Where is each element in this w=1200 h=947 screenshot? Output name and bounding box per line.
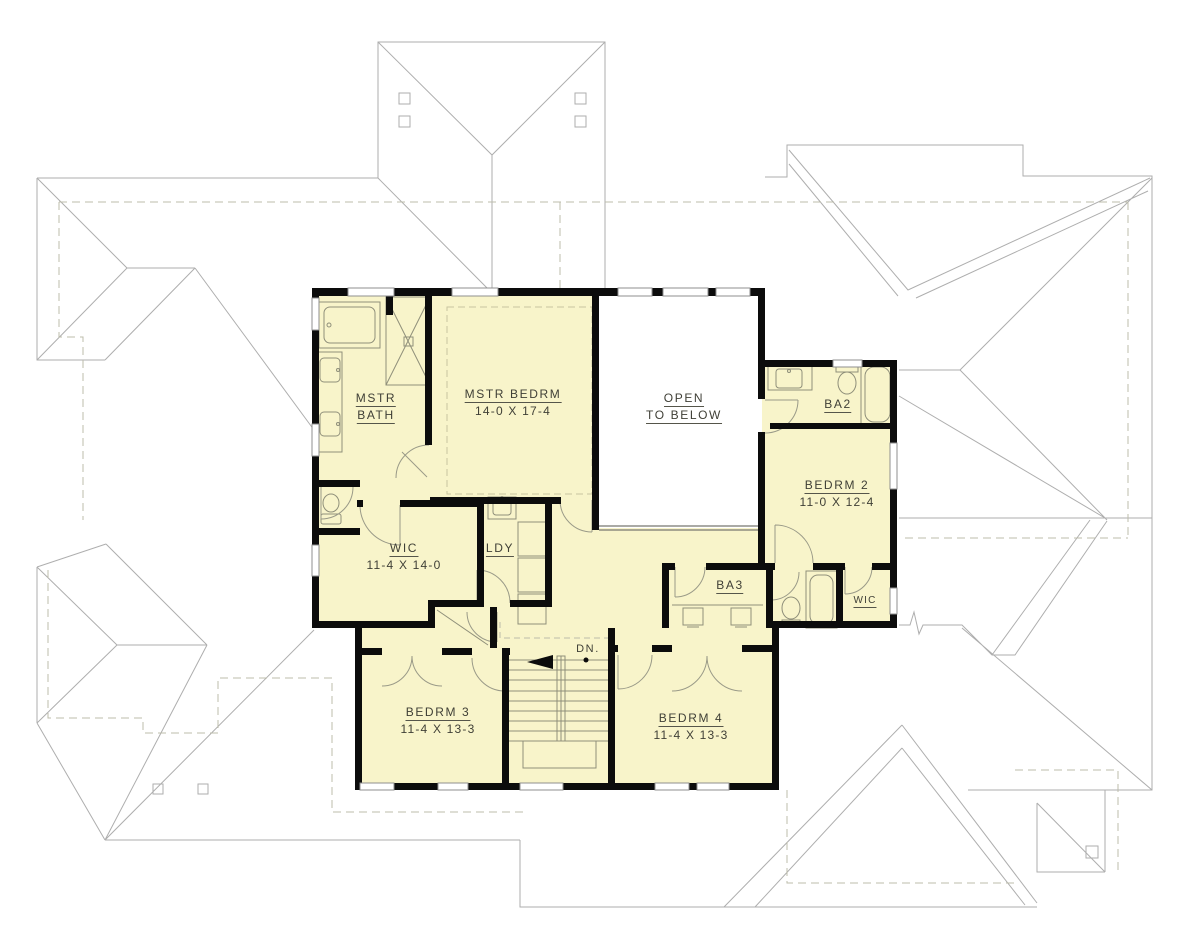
room-name: BA2: [824, 397, 851, 413]
room-name: MSTR BEDRM: [465, 387, 562, 403]
room-label-mstr-bath: MSTR BATH: [356, 390, 396, 424]
room-name: LDY: [486, 541, 514, 557]
room-name: MSTR: [356, 391, 396, 407]
room-label-wic: WIC 11-4 X 14-0: [366, 540, 441, 574]
room-name: BEDRM 2: [805, 478, 870, 494]
dn-label-dot: [584, 658, 589, 663]
room-dimensions: 11-0 X 12-4: [799, 495, 874, 509]
room-label-open-below: OPEN TO BELOW: [646, 390, 722, 424]
room-name: BEDRM 4: [659, 711, 724, 727]
room-dimensions: 11-4 X 13-3: [653, 728, 728, 742]
floor-plan-drawing: [0, 0, 1200, 947]
room-label-bedrm3: BEDRM 3 11-4 X 13-3: [400, 704, 475, 738]
dn-text: DN.: [576, 643, 600, 655]
room-label-bedrm4: BEDRM 4 11-4 X 13-3: [653, 710, 728, 744]
room-dimensions: 14-0 X 17-4: [475, 404, 551, 418]
room-label-bedrm2: BEDRM 2 11-0 X 12-4: [799, 477, 874, 511]
room-label-ba2: BA2: [824, 396, 851, 413]
room-name: TO BELOW: [646, 408, 722, 424]
room-name: BA3: [716, 578, 743, 594]
room-name: OPEN: [664, 391, 704, 407]
room-name: WIC: [390, 541, 418, 557]
room-label-mstr-bedrm: MSTR BEDRM 14-0 X 17-4: [465, 386, 562, 420]
stairs-dn-label: DN.: [576, 642, 600, 657]
room-name: BATH: [357, 408, 395, 424]
room-dimensions: 11-4 X 14-0: [366, 558, 441, 572]
floor-plan-canvas: MSTR BATH MSTR BEDRM 14-0 X 17-4 OPEN TO…: [0, 0, 1200, 947]
room-label-ba3: BA3: [716, 577, 743, 594]
room-name: WIC: [853, 595, 876, 608]
room-dimensions: 11-4 X 13-3: [400, 722, 475, 736]
room-label-wic2: WIC: [853, 594, 876, 608]
room-name: BEDRM 3: [406, 705, 471, 721]
room-label-ldy: LDY: [486, 540, 514, 557]
